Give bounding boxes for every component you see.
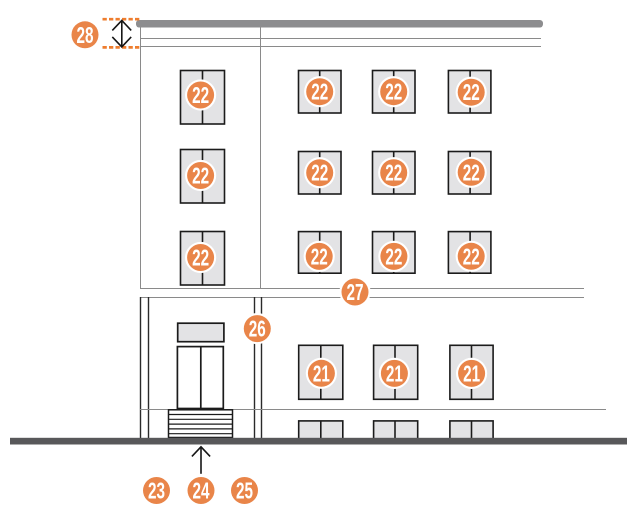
svg-text:28: 28 — [76, 23, 93, 49]
svg-text:22: 22 — [463, 80, 480, 106]
svg-text:22: 22 — [385, 244, 402, 270]
svg-text:22: 22 — [192, 163, 209, 189]
svg-text:22: 22 — [311, 80, 328, 106]
svg-text:22: 22 — [463, 160, 480, 186]
svg-text:22: 22 — [311, 244, 328, 270]
svg-text:22: 22 — [192, 245, 209, 271]
svg-text:26: 26 — [249, 317, 266, 343]
svg-text:21: 21 — [386, 361, 403, 387]
svg-text:25: 25 — [236, 478, 253, 504]
svg-text:23: 23 — [148, 478, 165, 504]
svg-text:22: 22 — [311, 161, 328, 187]
svg-text:24: 24 — [192, 478, 209, 504]
svg-text:21: 21 — [463, 361, 480, 387]
svg-text:22: 22 — [463, 244, 480, 270]
svg-text:22: 22 — [192, 83, 209, 109]
svg-text:22: 22 — [385, 161, 402, 187]
svg-text:21: 21 — [313, 361, 330, 387]
svg-text:22: 22 — [385, 80, 402, 106]
svg-text:27: 27 — [346, 280, 363, 306]
